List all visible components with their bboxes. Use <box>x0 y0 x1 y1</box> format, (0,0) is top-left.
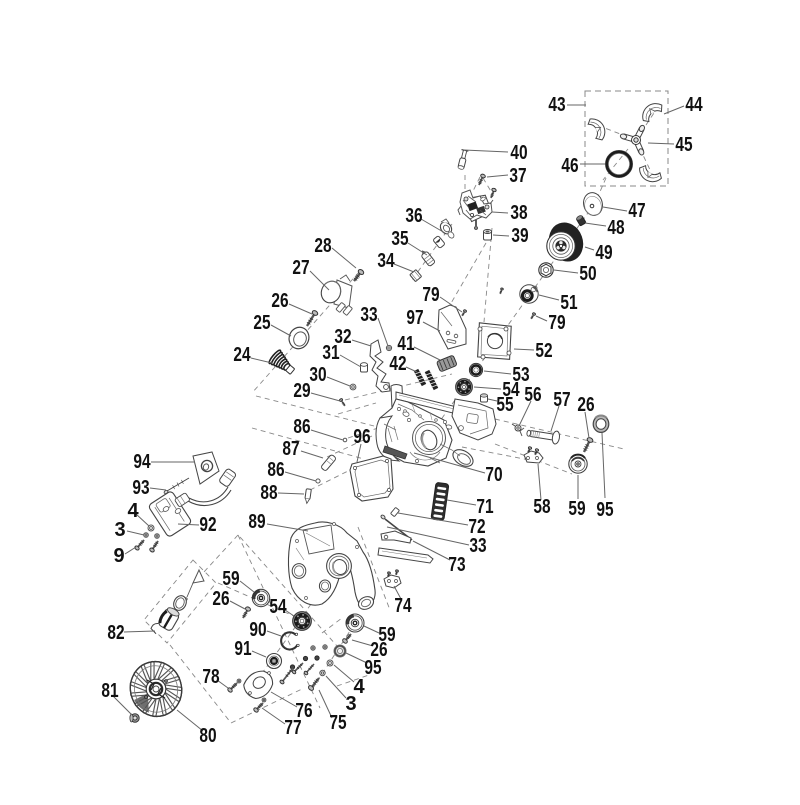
svg-text:92: 92 <box>199 514 216 536</box>
svg-text:33: 33 <box>469 535 486 557</box>
svg-text:3: 3 <box>114 519 125 541</box>
svg-text:80: 80 <box>199 725 216 747</box>
svg-text:82: 82 <box>107 622 124 644</box>
svg-text:93: 93 <box>132 477 149 499</box>
svg-text:79: 79 <box>548 312 565 334</box>
svg-text:27: 27 <box>292 257 309 279</box>
svg-text:73: 73 <box>448 554 465 576</box>
svg-text:55: 55 <box>496 394 513 416</box>
svg-text:86: 86 <box>267 459 284 481</box>
svg-text:9: 9 <box>113 545 124 567</box>
svg-text:39: 39 <box>511 225 528 247</box>
svg-text:42: 42 <box>389 353 406 375</box>
svg-text:52: 52 <box>535 340 552 362</box>
svg-text:33: 33 <box>360 304 377 326</box>
svg-text:49: 49 <box>595 242 612 264</box>
svg-text:78: 78 <box>202 666 219 688</box>
svg-text:24: 24 <box>233 344 251 366</box>
svg-text:77: 77 <box>284 717 301 739</box>
svg-text:86: 86 <box>293 416 310 438</box>
svg-text:47: 47 <box>628 200 645 222</box>
svg-text:58: 58 <box>533 496 550 518</box>
svg-text:70: 70 <box>485 464 502 486</box>
svg-text:31: 31 <box>322 342 339 364</box>
svg-text:26: 26 <box>212 588 229 610</box>
svg-text:34: 34 <box>377 250 395 272</box>
svg-text:44: 44 <box>685 94 703 116</box>
svg-text:57: 57 <box>553 389 570 411</box>
svg-text:75: 75 <box>329 712 346 734</box>
svg-text:79: 79 <box>422 284 439 306</box>
svg-text:38: 38 <box>510 202 527 224</box>
svg-text:59: 59 <box>222 568 239 590</box>
svg-text:91: 91 <box>234 638 251 660</box>
svg-text:59: 59 <box>378 624 395 646</box>
svg-text:43: 43 <box>548 94 565 116</box>
svg-text:74: 74 <box>394 595 412 617</box>
svg-text:97: 97 <box>406 307 423 329</box>
svg-text:40: 40 <box>510 142 527 164</box>
svg-text:48: 48 <box>607 217 624 239</box>
svg-text:95: 95 <box>596 499 613 521</box>
svg-text:51: 51 <box>560 292 577 314</box>
svg-text:59: 59 <box>568 498 585 520</box>
svg-text:45: 45 <box>675 134 692 156</box>
svg-text:71: 71 <box>476 496 493 518</box>
svg-text:35: 35 <box>391 228 408 250</box>
svg-text:50: 50 <box>579 263 596 285</box>
svg-text:26: 26 <box>271 290 288 312</box>
svg-text:41: 41 <box>397 333 414 355</box>
svg-text:26: 26 <box>577 394 594 416</box>
svg-text:90: 90 <box>249 619 266 641</box>
svg-text:88: 88 <box>260 482 277 504</box>
svg-text:28: 28 <box>314 235 331 257</box>
svg-text:4: 4 <box>127 500 139 522</box>
svg-text:37: 37 <box>509 165 526 187</box>
svg-text:30: 30 <box>309 364 326 386</box>
svg-text:87: 87 <box>282 438 299 460</box>
svg-text:4: 4 <box>353 676 365 698</box>
svg-text:56: 56 <box>524 384 541 406</box>
svg-text:46: 46 <box>561 155 578 177</box>
svg-text:81: 81 <box>101 680 118 702</box>
svg-text:29: 29 <box>293 380 310 402</box>
svg-text:96: 96 <box>353 426 370 448</box>
svg-text:94: 94 <box>133 451 151 473</box>
svg-text:89: 89 <box>248 511 265 533</box>
svg-text:25: 25 <box>253 312 270 334</box>
svg-text:36: 36 <box>405 205 422 227</box>
svg-text:54: 54 <box>269 596 287 618</box>
